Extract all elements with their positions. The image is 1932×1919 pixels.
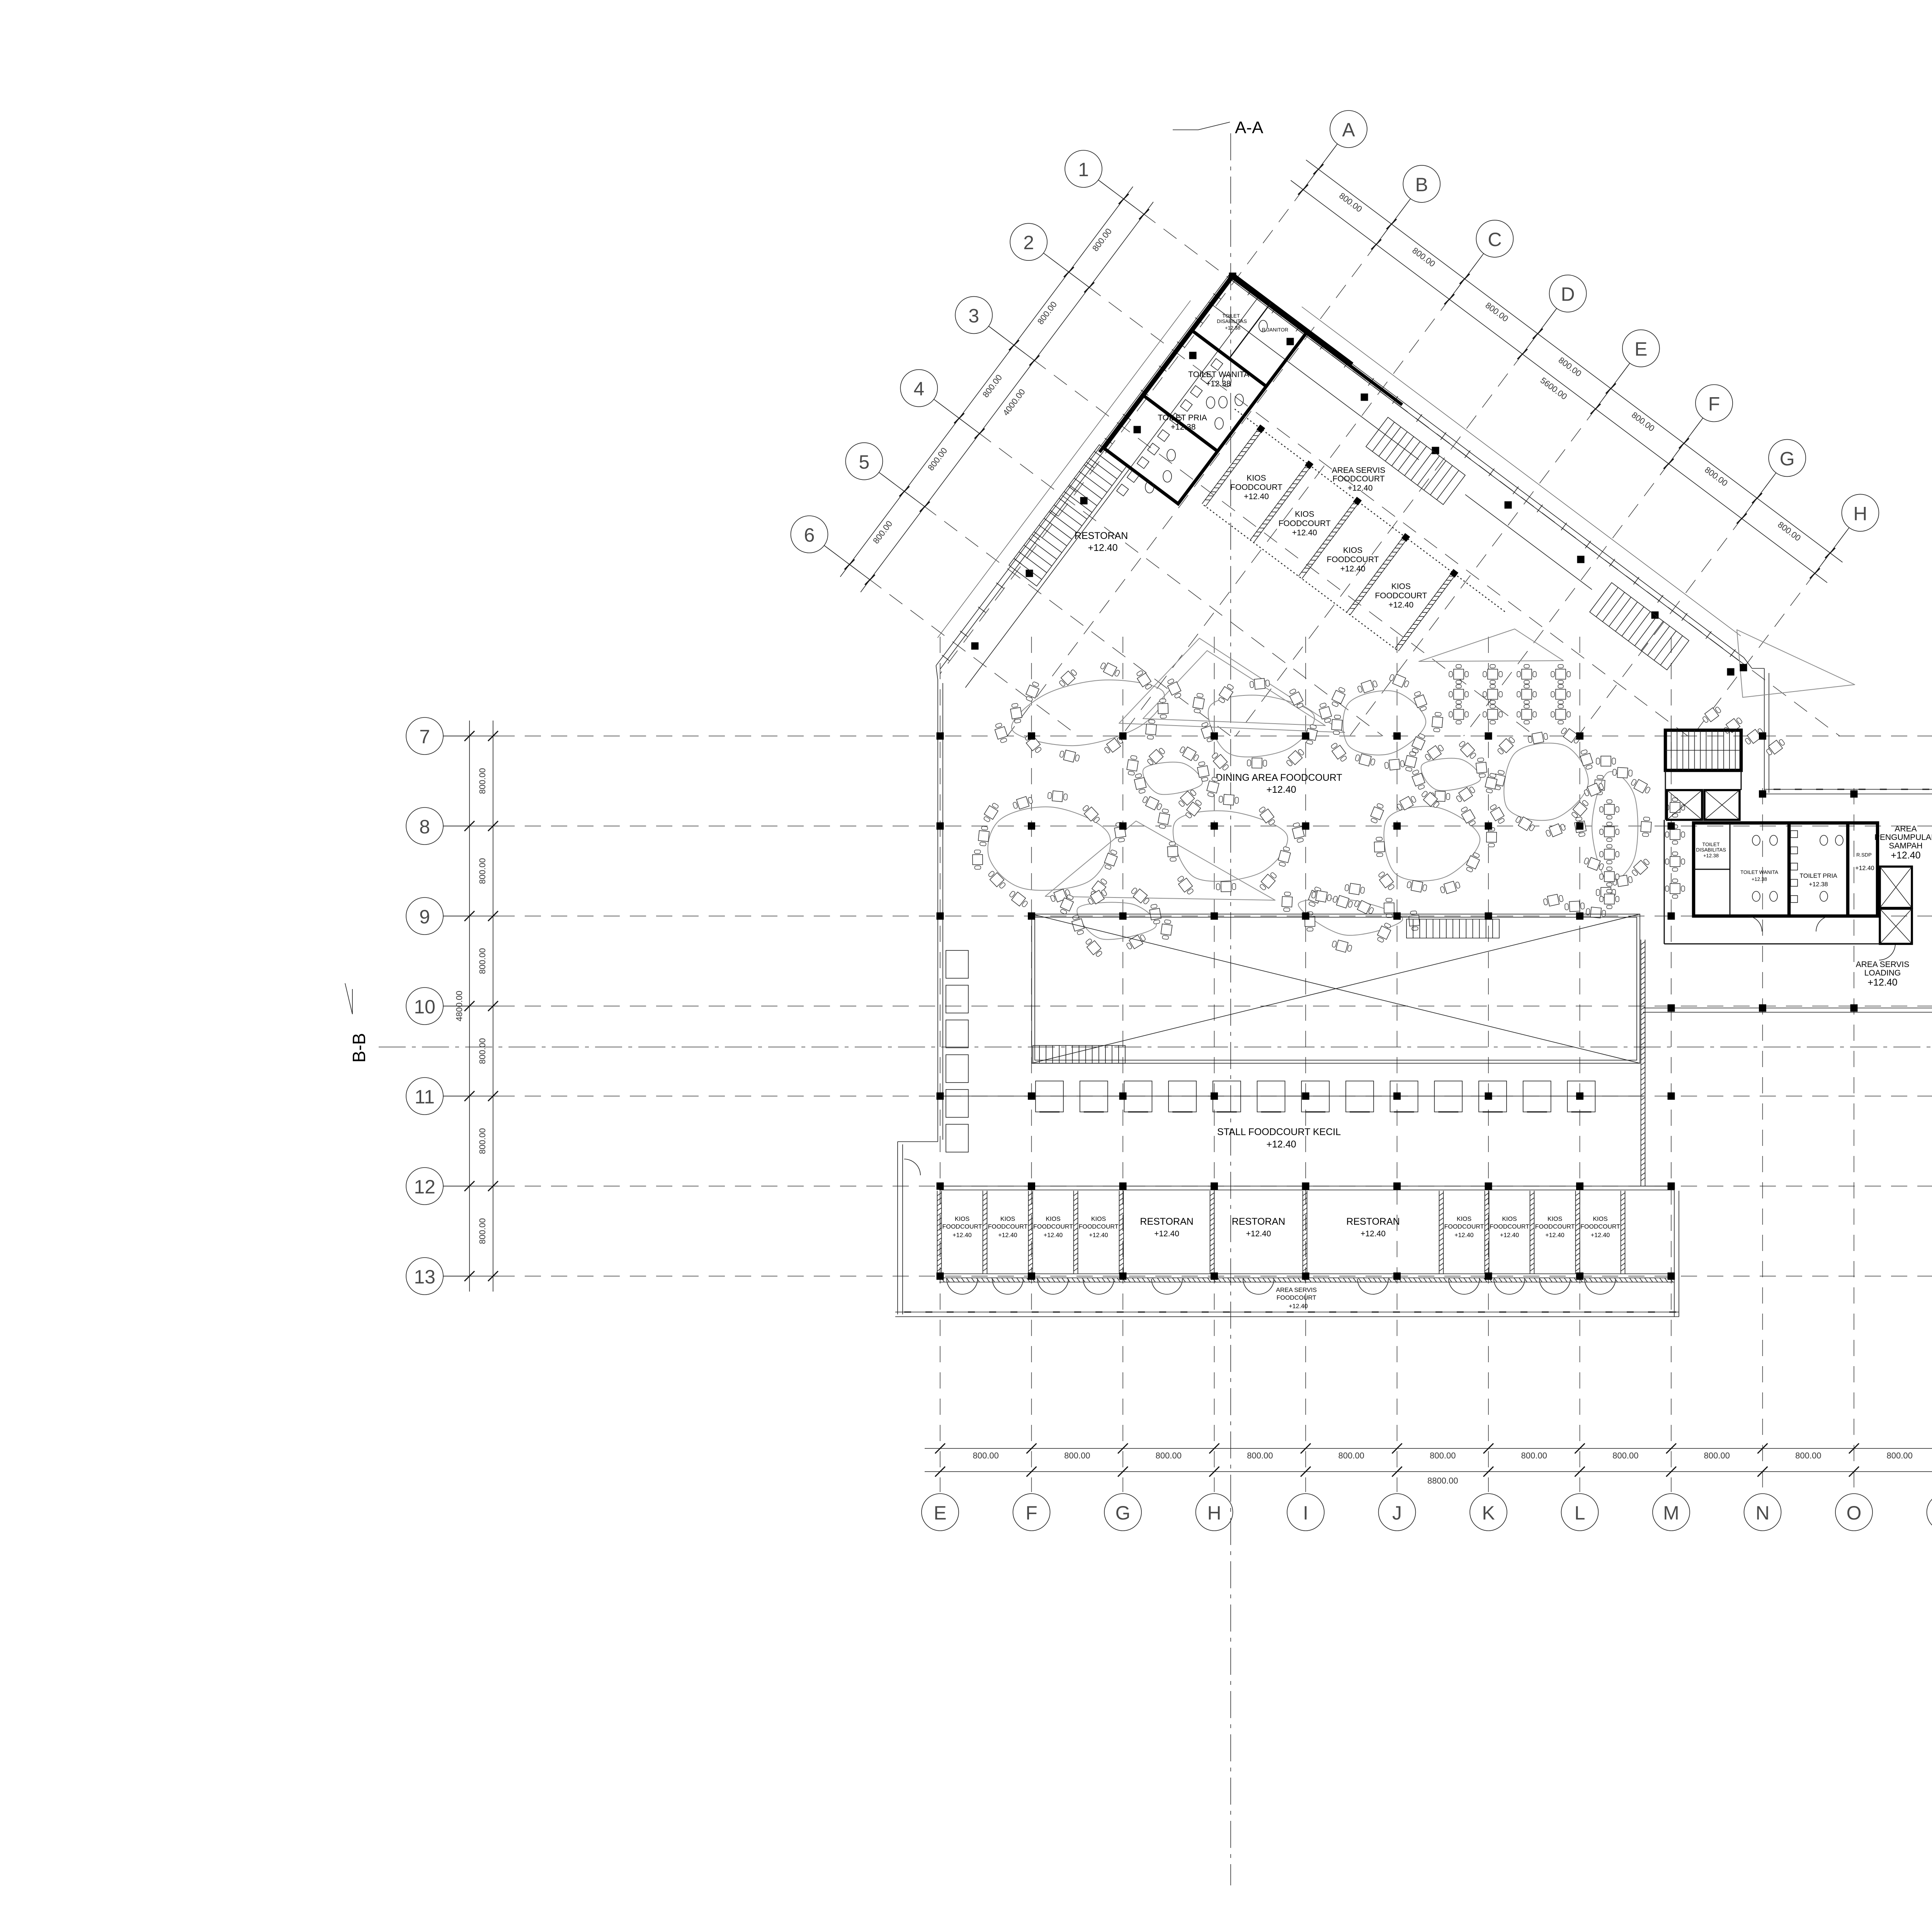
svg-text:TOILET: TOILET <box>1702 841 1719 847</box>
svg-text:G: G <box>1780 448 1795 469</box>
svg-text:TOILET PRIA: TOILET PRIA <box>1158 413 1207 422</box>
svg-text:+12.40: +12.40 <box>1891 850 1920 861</box>
svg-text:3: 3 <box>968 305 979 326</box>
svg-text:800.00: 800.00 <box>478 768 487 794</box>
svg-text:J: J <box>1392 1502 1402 1524</box>
svg-text:KIOS: KIOS <box>1457 1216 1471 1222</box>
svg-text:11: 11 <box>415 1086 435 1108</box>
svg-text:800.00: 800.00 <box>973 1451 999 1460</box>
svg-text:KIOS: KIOS <box>1343 546 1362 555</box>
svg-text:2: 2 <box>1023 232 1034 253</box>
svg-text:FOODCOURT: FOODCOURT <box>1490 1224 1529 1230</box>
svg-text:FOODCOURT: FOODCOURT <box>1033 1224 1073 1230</box>
svg-text:+12.40: +12.40 <box>1340 564 1366 573</box>
svg-text:KIOS: KIOS <box>1391 582 1411 591</box>
svg-text:LOADING: LOADING <box>1864 969 1901 977</box>
svg-text:R.JANITOR: R.JANITOR <box>1262 327 1288 333</box>
svg-text:TOILET WANITA: TOILET WANITA <box>1740 869 1778 875</box>
svg-text:PENGUMPULAN: PENGUMPULAN <box>1874 833 1932 842</box>
svg-text:+12.40: +12.40 <box>1266 1139 1296 1150</box>
svg-text:+12.40: +12.40 <box>1500 1232 1519 1239</box>
svg-text:B: B <box>1415 174 1428 195</box>
svg-text:+12.40: +12.40 <box>1292 528 1317 537</box>
svg-text:800.00: 800.00 <box>1247 1451 1273 1460</box>
svg-text:+12.40: +12.40 <box>998 1232 1017 1239</box>
svg-text:DINING AREA FOODCOURT: DINING AREA FOODCOURT <box>1216 772 1342 783</box>
svg-text:D: D <box>1561 284 1575 305</box>
svg-text:RESTORAN: RESTORAN <box>1140 1216 1193 1227</box>
svg-text:C: C <box>1488 229 1502 250</box>
svg-text:13: 13 <box>414 1266 435 1288</box>
svg-text:6: 6 <box>804 524 815 546</box>
svg-text:KIOS: KIOS <box>1091 1216 1106 1222</box>
svg-text:+12.38: +12.38 <box>1703 853 1719 858</box>
svg-text:AREA SERVIS: AREA SERVIS <box>1856 960 1910 969</box>
svg-text:RESTORAN: RESTORAN <box>1075 530 1128 541</box>
svg-text:+12.40: +12.40 <box>952 1232 971 1239</box>
svg-text:FOODCOURT: FOODCOURT <box>1327 555 1379 564</box>
svg-text:DISABILITAS: DISABILITAS <box>1217 318 1247 324</box>
svg-text:TOILET WANITA: TOILET WANITA <box>1188 370 1249 379</box>
svg-text:O: O <box>1847 1502 1862 1524</box>
svg-text:RESTORAN: RESTORAN <box>1346 1216 1400 1227</box>
svg-text:FOODCOURT: FOODCOURT <box>1580 1224 1620 1230</box>
svg-text:+12.38: +12.38 <box>1206 379 1231 388</box>
svg-text:800.00: 800.00 <box>1064 1451 1090 1460</box>
svg-text:KIOS: KIOS <box>1046 1216 1060 1222</box>
svg-text:4: 4 <box>913 378 924 400</box>
svg-text:+12.40: +12.40 <box>1454 1232 1473 1239</box>
svg-text:+12.40: +12.40 <box>1867 977 1897 988</box>
svg-text:AREA SERVIS: AREA SERVIS <box>1276 1287 1317 1293</box>
svg-text:G: G <box>1116 1502 1131 1524</box>
svg-text:FOODCOURT: FOODCOURT <box>1333 474 1385 483</box>
svg-text:B-B: B-B <box>349 1033 369 1063</box>
svg-text:+12.38: +12.38 <box>1752 876 1767 882</box>
svg-text:E: E <box>934 1502 946 1524</box>
svg-text:4800.00: 4800.00 <box>454 991 464 1022</box>
svg-text:+12.38: +12.38 <box>1225 325 1240 331</box>
svg-text:FOODCOURT: FOODCOURT <box>1375 592 1427 600</box>
svg-text:KIOS: KIOS <box>1000 1216 1015 1222</box>
svg-text:5: 5 <box>859 451 869 473</box>
svg-text:+12.40: +12.40 <box>1289 1303 1308 1310</box>
svg-text:+12.40: +12.40 <box>1246 1229 1271 1238</box>
svg-text:FOODCOURT: FOODCOURT <box>1230 483 1282 492</box>
svg-text:FOODCOURT: FOODCOURT <box>942 1224 982 1230</box>
svg-text:FOODCOURT: FOODCOURT <box>1535 1224 1575 1230</box>
svg-text:+12.40: +12.40 <box>1088 542 1117 553</box>
svg-text:KIOS: KIOS <box>1502 1216 1517 1222</box>
svg-text:+12.40: +12.40 <box>1348 484 1373 493</box>
svg-text:10: 10 <box>414 996 435 1018</box>
svg-text:FOODCOURT: FOODCOURT <box>1277 1295 1316 1301</box>
svg-text:7: 7 <box>419 726 430 748</box>
svg-text:SAMPAH: SAMPAH <box>1889 841 1922 850</box>
svg-text:8: 8 <box>419 816 430 838</box>
svg-text:M: M <box>1663 1502 1679 1524</box>
svg-text:L: L <box>1575 1502 1585 1524</box>
svg-text:A-A: A-A <box>1235 118 1264 137</box>
svg-text:STALL FOODCOURT KECIL: STALL FOODCOURT KECIL <box>1217 1127 1341 1137</box>
svg-text:800.00: 800.00 <box>1795 1451 1821 1460</box>
svg-text:KIOS: KIOS <box>955 1216 969 1222</box>
svg-text:F: F <box>1026 1502 1037 1524</box>
svg-text:+12.40: +12.40 <box>1545 1232 1564 1239</box>
svg-text:H: H <box>1207 1502 1221 1524</box>
svg-text:800.00: 800.00 <box>1156 1451 1182 1460</box>
svg-text:+12.40: +12.40 <box>1855 865 1874 872</box>
svg-text:9: 9 <box>419 906 430 928</box>
svg-text:TOILET: TOILET <box>1222 313 1240 319</box>
svg-text:800.00: 800.00 <box>1612 1451 1638 1460</box>
svg-text:+12.40: +12.40 <box>1089 1232 1108 1239</box>
svg-text:12: 12 <box>414 1176 435 1198</box>
svg-text:KIOS: KIOS <box>1247 474 1266 483</box>
svg-text:KIOS: KIOS <box>1295 510 1314 518</box>
svg-text:N: N <box>1755 1502 1769 1524</box>
svg-text:+12.38: +12.38 <box>1171 423 1196 432</box>
svg-text:800.00: 800.00 <box>478 948 487 974</box>
svg-text:KIOS: KIOS <box>1548 1216 1562 1222</box>
svg-text:+12.40: +12.40 <box>1361 1229 1386 1238</box>
svg-text:1: 1 <box>1078 159 1089 180</box>
svg-text:+12.38: +12.38 <box>1809 881 1828 888</box>
svg-text:800.00: 800.00 <box>478 1218 487 1244</box>
svg-text:800.00: 800.00 <box>478 1128 487 1154</box>
svg-text:H: H <box>1853 503 1867 524</box>
svg-text:R.SDP: R.SDP <box>1856 852 1872 858</box>
svg-text:FOODCOURT: FOODCOURT <box>1279 519 1331 528</box>
svg-text:800.00: 800.00 <box>1521 1451 1547 1460</box>
svg-text:800.00: 800.00 <box>478 1038 487 1064</box>
svg-text:+12.40: +12.40 <box>1154 1229 1179 1238</box>
svg-text:DISABILITAS: DISABILITAS <box>1696 847 1726 853</box>
svg-text:FOODCOURT: FOODCOURT <box>1444 1224 1484 1230</box>
svg-text:A: A <box>1342 119 1355 141</box>
svg-text:800.00: 800.00 <box>1430 1451 1456 1460</box>
svg-text:KIOS: KIOS <box>1593 1216 1607 1222</box>
svg-text:800.00: 800.00 <box>1887 1451 1913 1460</box>
svg-text:+12.40: +12.40 <box>1244 492 1269 501</box>
svg-text:+12.40: +12.40 <box>1388 601 1413 610</box>
svg-text:800.00: 800.00 <box>1338 1451 1364 1460</box>
svg-text:+12.40: +12.40 <box>1591 1232 1610 1239</box>
svg-text:+12.40: +12.40 <box>1044 1232 1063 1239</box>
svg-text:I: I <box>1303 1502 1308 1524</box>
svg-text:+12.40: +12.40 <box>1266 784 1296 795</box>
svg-text:RESTORAN: RESTORAN <box>1232 1216 1285 1227</box>
svg-text:800.00: 800.00 <box>478 858 487 884</box>
svg-text:E: E <box>1634 338 1647 360</box>
svg-text:K: K <box>1482 1502 1495 1524</box>
svg-text:TOILET PRIA: TOILET PRIA <box>1799 873 1837 879</box>
svg-text:AREA SERVIS: AREA SERVIS <box>1332 466 1386 475</box>
svg-text:8800.00: 8800.00 <box>1427 1476 1458 1486</box>
svg-text:FOODCOURT: FOODCOURT <box>1079 1224 1119 1230</box>
svg-text:F: F <box>1708 393 1720 415</box>
svg-text:AREA: AREA <box>1895 824 1917 833</box>
svg-text:800.00: 800.00 <box>1704 1451 1730 1460</box>
svg-text:FOODCOURT: FOODCOURT <box>988 1224 1028 1230</box>
